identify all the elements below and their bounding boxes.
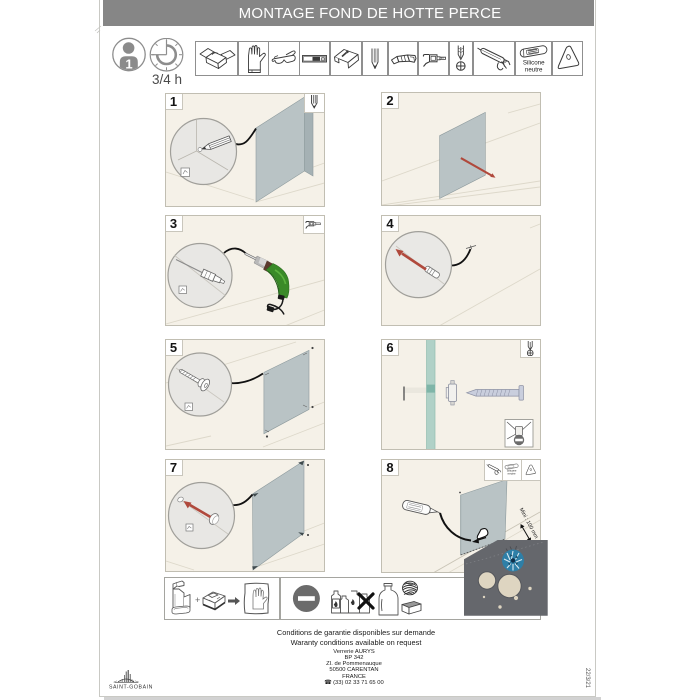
svg-text:SAINT-GOBAIN: SAINT-GOBAIN — [109, 685, 153, 691]
svg-text:Mini : 100 mm: Mini : 100 mm — [518, 507, 539, 540]
svg-text:1: 1 — [125, 57, 132, 72]
svg-text:+: + — [195, 595, 200, 605]
svg-text:Silicone: Silicone — [522, 60, 544, 67]
svg-text:neutre: neutre — [507, 472, 515, 476]
svg-text:neutre: neutre — [524, 67, 542, 74]
